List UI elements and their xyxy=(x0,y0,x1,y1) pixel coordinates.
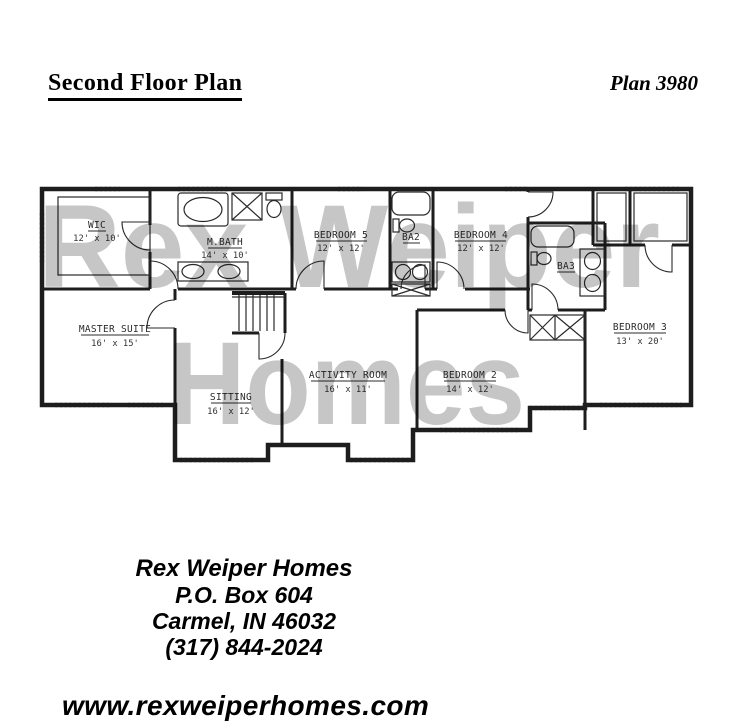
page: Second Floor Plan Plan 3980 xyxy=(0,0,750,728)
footer-address-block: Rex Weiper Homes P.O. Box 604 Carmel, IN… xyxy=(0,556,488,660)
svg-text:16' x 15': 16' x 15' xyxy=(91,339,139,349)
room-label-bedroom3: BEDROOM 3 13' x 20' xyxy=(613,322,667,347)
svg-text:13' x 20': 13' x 20' xyxy=(616,337,664,347)
company-name: Rex Weiper Homes xyxy=(0,556,488,582)
watermark-line2: Homes xyxy=(168,318,525,450)
po-box-line: P.O. Box 604 xyxy=(0,582,488,608)
svg-text:BEDROOM 3: BEDROOM 3 xyxy=(613,322,667,333)
room-label-master-suite: MASTER SUITE 16' x 15' xyxy=(79,324,151,349)
city-state-zip-line: Carmel, IN 46032 xyxy=(0,608,488,634)
phone-number: (317) 844-2024 xyxy=(0,634,488,660)
watermark-line1: Rex Weiper xyxy=(38,181,660,313)
bedroom2-closet xyxy=(530,315,585,340)
svg-text:MASTER SUITE: MASTER SUITE xyxy=(79,324,151,335)
website-url: www.rexweiperhomes.com xyxy=(62,690,429,722)
